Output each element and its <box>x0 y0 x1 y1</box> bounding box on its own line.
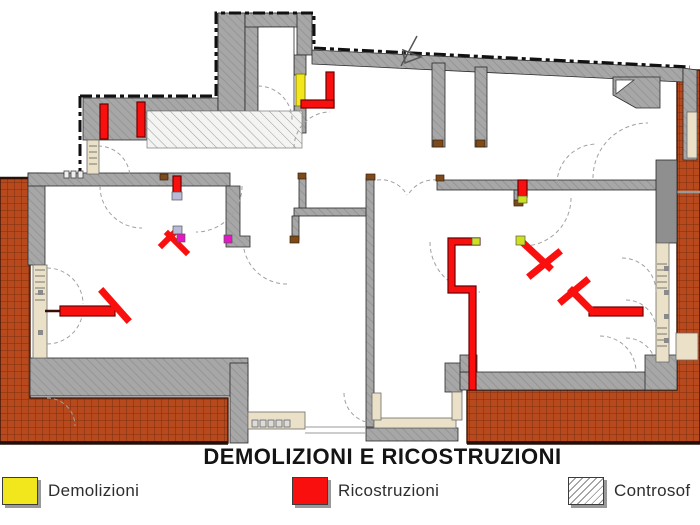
wall-bottom-left <box>30 358 248 396</box>
legend-item-ricostruzioni: Ricostruzioni <box>292 477 439 505</box>
balcony-railing <box>252 420 366 433</box>
screenshot-root: DEMOLIZIONI E RICOSTRUZIONI Demolizioni … <box>0 0 700 525</box>
demolition-swatch <box>2 477 38 505</box>
vent-trio <box>64 171 83 178</box>
legend-label: Demolizioni <box>48 481 139 501</box>
accent-squares <box>172 192 527 245</box>
wall-block-right <box>656 160 677 243</box>
false-ceiling-band <box>147 111 302 148</box>
legend-label: Ricostruzioni <box>338 481 439 501</box>
wall-mid-left <box>28 173 230 186</box>
wall-bottom-right <box>460 372 658 390</box>
legend-label: Controsof <box>614 481 690 501</box>
plan-title: DEMOLIZIONI E RICOSTRUZIONI <box>0 444 700 470</box>
wall-centre-vertical <box>366 178 374 427</box>
wall-left-lower <box>28 173 45 265</box>
window-frame-dots <box>38 266 669 343</box>
reconstruction-swatch <box>292 477 328 505</box>
legend-item-demolizioni: Demolizioni <box>2 477 139 505</box>
wall-mid-right <box>437 180 658 190</box>
false-ceiling-swatch <box>568 477 604 505</box>
wall-end-caps <box>160 140 523 243</box>
walls <box>28 13 697 443</box>
boundary-dashdot <box>80 13 690 176</box>
page-title: DEMOLIZIONI E RICOSTRUZIONI <box>203 444 561 469</box>
legend-item-controsoffitto: Controsof <box>568 477 690 505</box>
floor-plan <box>0 0 700 470</box>
